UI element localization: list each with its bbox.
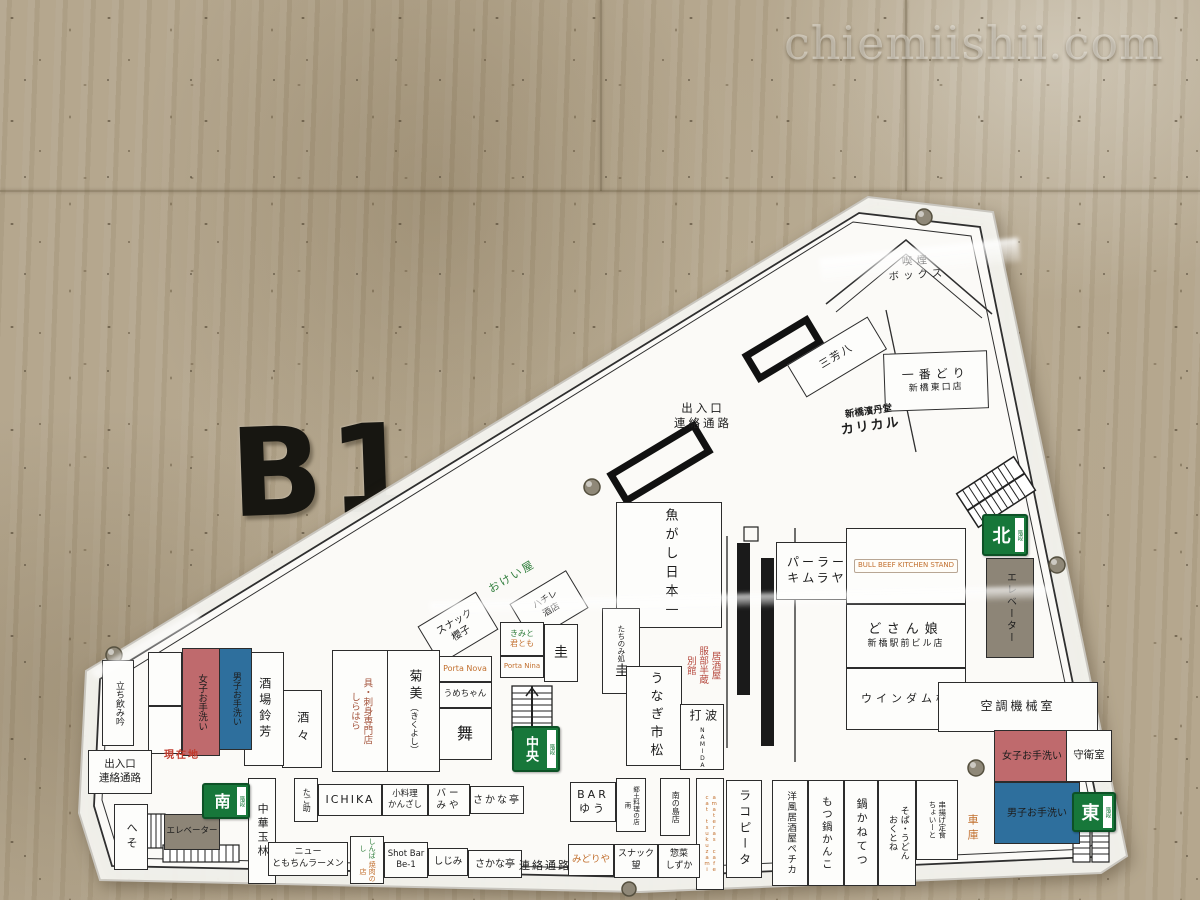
shop-kanzashi: 小料理 かんざし bbox=[382, 784, 428, 816]
shop-tachinomi-gin: 立ち飲み吟 bbox=[102, 660, 134, 746]
shop-shinbashi: しんばし bbox=[358, 837, 376, 860]
elevator-left: エレベーター bbox=[164, 814, 220, 850]
shop-amateras-cafe: amateras cafe cat tsukuzami bbox=[696, 778, 724, 890]
exit-sign-south-label: 南 bbox=[204, 785, 237, 817]
women-restroom-right: 女子お手洗い bbox=[994, 730, 1070, 782]
shop-new-tomochin: ニュー ともちんラーメン bbox=[268, 842, 348, 876]
stairs-icon-central bbox=[512, 686, 552, 730]
shop-unagi-ichimatsu: うなぎ市松 bbox=[626, 666, 682, 766]
exit-sign-east: 東 階段 bbox=[1072, 792, 1116, 832]
room-box bbox=[148, 652, 182, 706]
shop-porta-nina: Porta Nina bbox=[500, 656, 544, 678]
shop-motsunabe-kanko: もつ鍋かんこ bbox=[808, 780, 844, 886]
shop-beef-kitchen-stand: BULL BEEF KITCHEN STAND bbox=[846, 528, 966, 604]
shop-mai: 舞 bbox=[438, 708, 492, 760]
shop-midoriya: みどりや bbox=[568, 844, 614, 876]
shop-kikumi-name: 菊美 bbox=[405, 669, 422, 703]
shop-tagosuke: たご助 bbox=[294, 778, 318, 822]
you-are-here-label: 現在地 bbox=[152, 748, 212, 762]
shop-sozai-shizuka: 惣菜 しずか bbox=[658, 844, 700, 878]
exit-sign-north-stairs: 階段 bbox=[1015, 518, 1024, 552]
shop-kei2: 圭 bbox=[544, 624, 578, 682]
shop-snack-nozomi: スナック 望 bbox=[614, 844, 658, 878]
guard-room: 守衛室 bbox=[1066, 730, 1112, 782]
shop-bar-yuu: BAR ゆう bbox=[570, 782, 616, 822]
exit-sign-central-stairs: 階段 bbox=[547, 730, 556, 768]
shop-namida-romaji: NAMIDA bbox=[698, 727, 706, 769]
shop-choito: 串揚げ定食 ちょいーと bbox=[916, 780, 958, 860]
shop-minami-no-shima: 南の島店 bbox=[660, 778, 690, 836]
elevator-right: エレベーター bbox=[986, 558, 1034, 658]
corridor-passage-label: 連絡通路 bbox=[516, 858, 574, 874]
corridor-left-entrance: 出入口 連絡通路 bbox=[88, 750, 152, 794]
exit-sign-central: 中央 階段 bbox=[512, 726, 560, 772]
men-restroom-right: 男子お手洗い bbox=[994, 782, 1080, 844]
women-restroom-left: 女子お手洗い bbox=[182, 648, 220, 756]
exit-sign-east-stairs: 階段 bbox=[1103, 796, 1112, 828]
shop-kikumi-kana: （きくよし） bbox=[407, 703, 418, 754]
shop-ichibandori-branch: 新橋東口店 bbox=[909, 382, 964, 396]
shop-pechka: 洋風居酒屋ペチカ bbox=[772, 780, 808, 886]
men-restroom-left: 男子お手洗い bbox=[218, 648, 252, 750]
shop-la-copita: ラコピータ bbox=[726, 780, 762, 878]
exit-sign-south-stairs: 階段 bbox=[237, 787, 246, 815]
exit-sign-north: 北 階段 bbox=[982, 514, 1028, 556]
exit-sign-north-label: 北 bbox=[984, 516, 1015, 554]
shop-shijimi: しじみ bbox=[428, 848, 468, 876]
shop-dosanko: どさん娘 新橋駅前ビル店 bbox=[846, 604, 966, 668]
shop-sakanatei-1: さかな亭 bbox=[470, 786, 524, 814]
shop-umechan: うめちゃん bbox=[438, 682, 492, 708]
shop-dosanko-name: どさん娘 bbox=[868, 622, 944, 639]
shop-sakanatei-2: さかな亭 bbox=[468, 850, 522, 878]
shop-kimito-kimitomo: きみと 君とも bbox=[500, 622, 544, 656]
shop-namida: 波打 NAMIDA bbox=[680, 704, 724, 770]
room-smoking-box: 喫煙 ボックス bbox=[861, 242, 974, 296]
shop-beef-kitchen-stand-label: BULL BEEF KITCHEN STAND bbox=[854, 559, 958, 572]
room-aircon: 空調機械室 bbox=[938, 682, 1098, 732]
shop-kyodo-minami: 郷土料理の店 南 bbox=[616, 778, 646, 832]
shop-shotbar-be1: Shot Bar Be-1 bbox=[384, 842, 428, 878]
shop-hattori-hanzo: 居酒屋 服部半蔵 別館 bbox=[684, 620, 720, 710]
shop-kimito: きみと bbox=[510, 629, 534, 639]
shop-shirahara: 具・刺身専門店 しらはら bbox=[332, 650, 388, 772]
shop-namida-name: 波打 bbox=[686, 705, 717, 727]
shop-dosanko-branch: 新橋駅前ビル店 bbox=[867, 639, 944, 651]
shop-shinbashi-yakiniku: しんばし 焼肉の店 bbox=[350, 836, 384, 884]
room-box bbox=[148, 706, 182, 754]
shop-bar-miya: バー みや bbox=[428, 784, 470, 816]
exit-sign-south: 南 階段 bbox=[202, 783, 250, 819]
shop-porta-nova: Porta Nova bbox=[438, 656, 492, 682]
shop-tachinomi-kei-prefix: たちのみ処 bbox=[616, 625, 626, 663]
shop-ichika: ICHIKA bbox=[318, 784, 382, 816]
photo-of-floor-map-panel: chiemiishii.com B1 bbox=[0, 0, 1200, 900]
shop-shusshu: 酒々 bbox=[282, 690, 322, 768]
exit-sign-central-label: 中央 bbox=[514, 728, 547, 770]
garage: 車庫 bbox=[960, 800, 984, 858]
shop-nabe-kanetetsu: 鍋かねてつ bbox=[844, 780, 878, 886]
exit-sign-east-label: 東 bbox=[1074, 794, 1103, 830]
shop-okutone: そば・うどん おくとね bbox=[878, 780, 916, 886]
shop-kikumi: 菊美 （きくよし） bbox=[386, 650, 440, 772]
shop-kimitomo: 君とも bbox=[510, 639, 534, 649]
corridor-top-entrance: 出入口 連絡通路 bbox=[660, 396, 746, 436]
shop-heso: へそ bbox=[114, 804, 148, 870]
shop-yakiniku: 焼肉の店 bbox=[358, 860, 376, 883]
